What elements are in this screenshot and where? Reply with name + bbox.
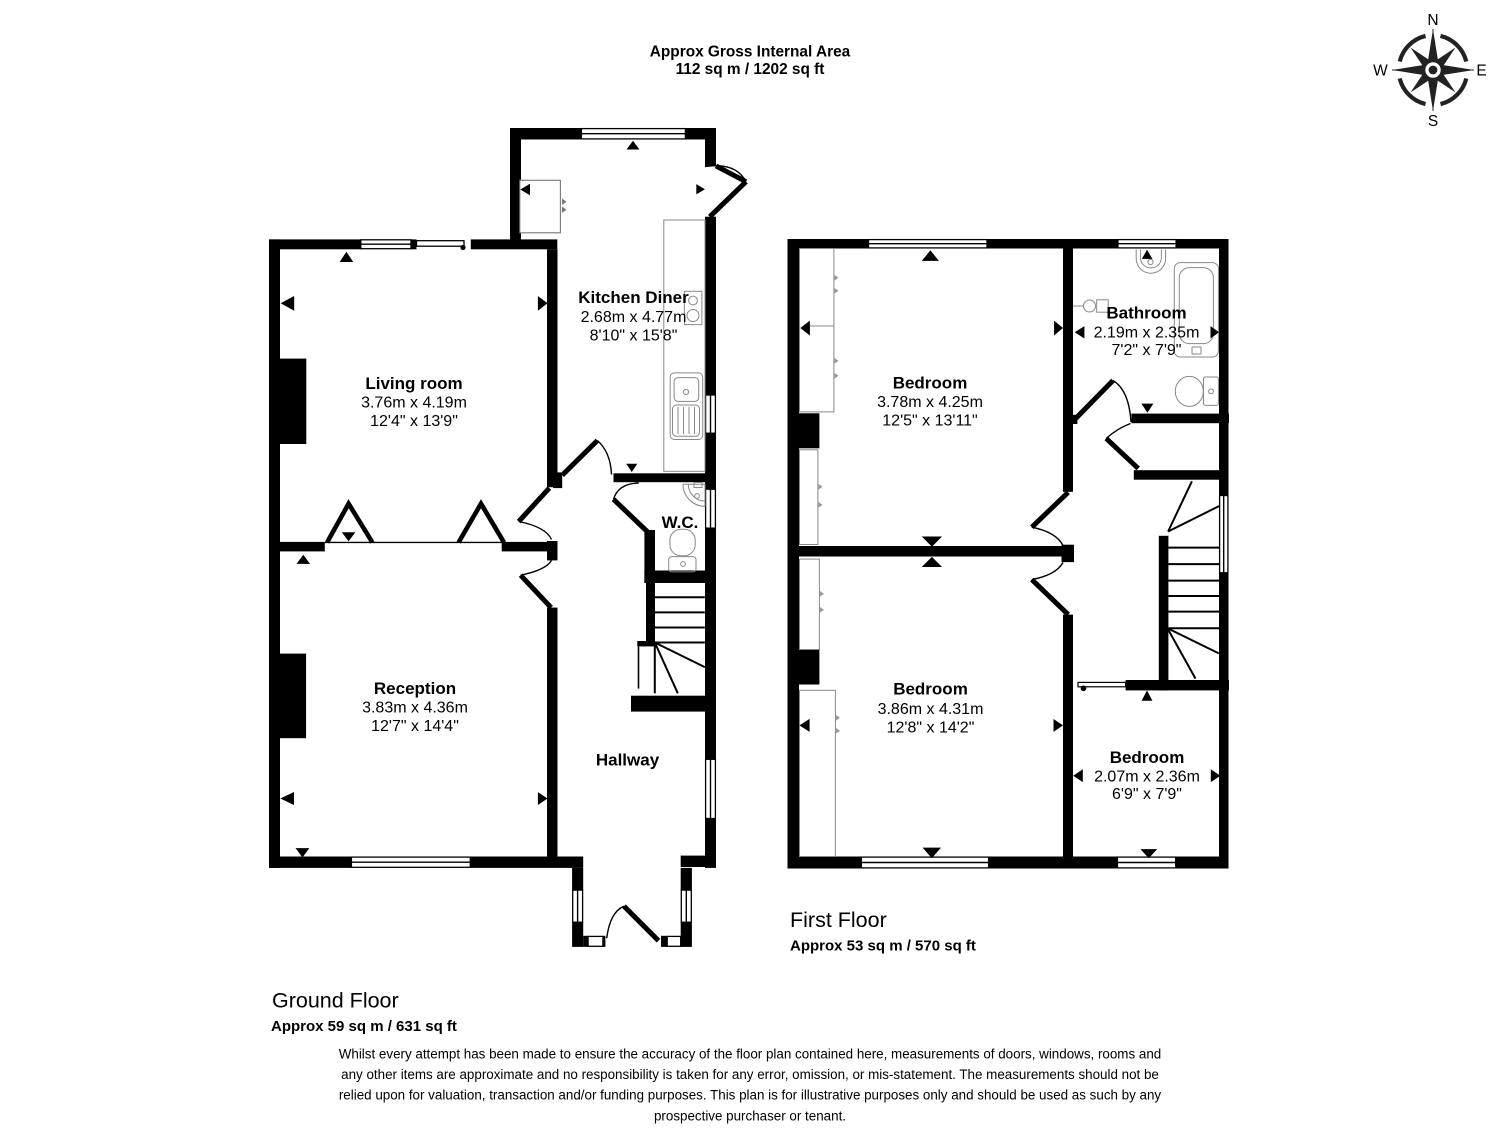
svg-text:3.83m x 4.36m: 3.83m x 4.36m	[362, 700, 468, 717]
svg-text:Approx Gross Internal Area: Approx Gross Internal Area	[650, 44, 851, 61]
svg-text:W: W	[1373, 63, 1388, 80]
svg-text:Approx 53 sq m / 570 sq ft: Approx 53 sq m / 570 sq ft	[790, 938, 976, 955]
svg-text:2.07m x 2.36m: 2.07m x 2.36m	[1094, 769, 1200, 786]
svg-text:prospective purchaser or tenan: prospective purchaser or tenant.	[654, 1109, 846, 1124]
svg-text:Living room: Living room	[365, 374, 462, 393]
svg-text:N: N	[1427, 12, 1438, 29]
svg-text:Bedroom: Bedroom	[893, 374, 968, 393]
svg-text:3.78m x 4.25m: 3.78m x 4.25m	[877, 394, 983, 411]
svg-text:S: S	[1428, 113, 1438, 130]
svg-text:First Floor: First Floor	[790, 908, 887, 932]
svg-text:Bedroom: Bedroom	[893, 680, 968, 699]
svg-text:Whilst every attempt has been: Whilst every attempt has been made to en…	[339, 1047, 1161, 1062]
svg-text:Hallway: Hallway	[596, 750, 660, 769]
svg-text:Reception: Reception	[374, 679, 456, 698]
svg-text:12'5" x 13'11": 12'5" x 13'11"	[882, 413, 977, 430]
svg-text:12'4" x 13'9": 12'4" x 13'9"	[370, 413, 458, 430]
svg-text:Bathroom: Bathroom	[1106, 304, 1186, 323]
svg-text:12'8" x 14'2": 12'8" x 14'2"	[887, 720, 975, 737]
svg-text:7'2" x 7'9": 7'2" x 7'9"	[1112, 342, 1182, 359]
svg-text:any other items are approximat: any other items are approximate and no r…	[341, 1067, 1159, 1082]
svg-text:6'9" x 7'9": 6'9" x 7'9"	[1112, 786, 1182, 803]
svg-text:Bedroom: Bedroom	[1110, 748, 1185, 767]
svg-text:2.68m x 4.77m: 2.68m x 4.77m	[581, 309, 687, 326]
svg-text:12'7" x 14'4": 12'7" x 14'4"	[371, 718, 459, 735]
svg-text:E: E	[1476, 63, 1486, 80]
svg-text:2.19m x 2.35m: 2.19m x 2.35m	[1094, 324, 1200, 341]
svg-text:112 sq m / 1202 sq ft: 112 sq m / 1202 sq ft	[676, 61, 825, 78]
svg-text:relied upon for valuation, tra: relied upon for valuation, transaction a…	[339, 1088, 1162, 1103]
svg-text:W.C.: W.C.	[662, 513, 699, 532]
svg-text:3.86m x 4.31m: 3.86m x 4.31m	[878, 701, 984, 718]
svg-text:Approx 59 sq m / 631 sq ft: Approx 59 sq m / 631 sq ft	[271, 1018, 457, 1035]
svg-text:8'10" x 15'8": 8'10" x 15'8"	[590, 328, 678, 345]
svg-text:Kitchen Diner: Kitchen Diner	[578, 288, 689, 307]
svg-text:3.76m x 4.19m: 3.76m x 4.19m	[361, 395, 467, 412]
svg-text:Ground Floor: Ground Floor	[272, 989, 399, 1013]
